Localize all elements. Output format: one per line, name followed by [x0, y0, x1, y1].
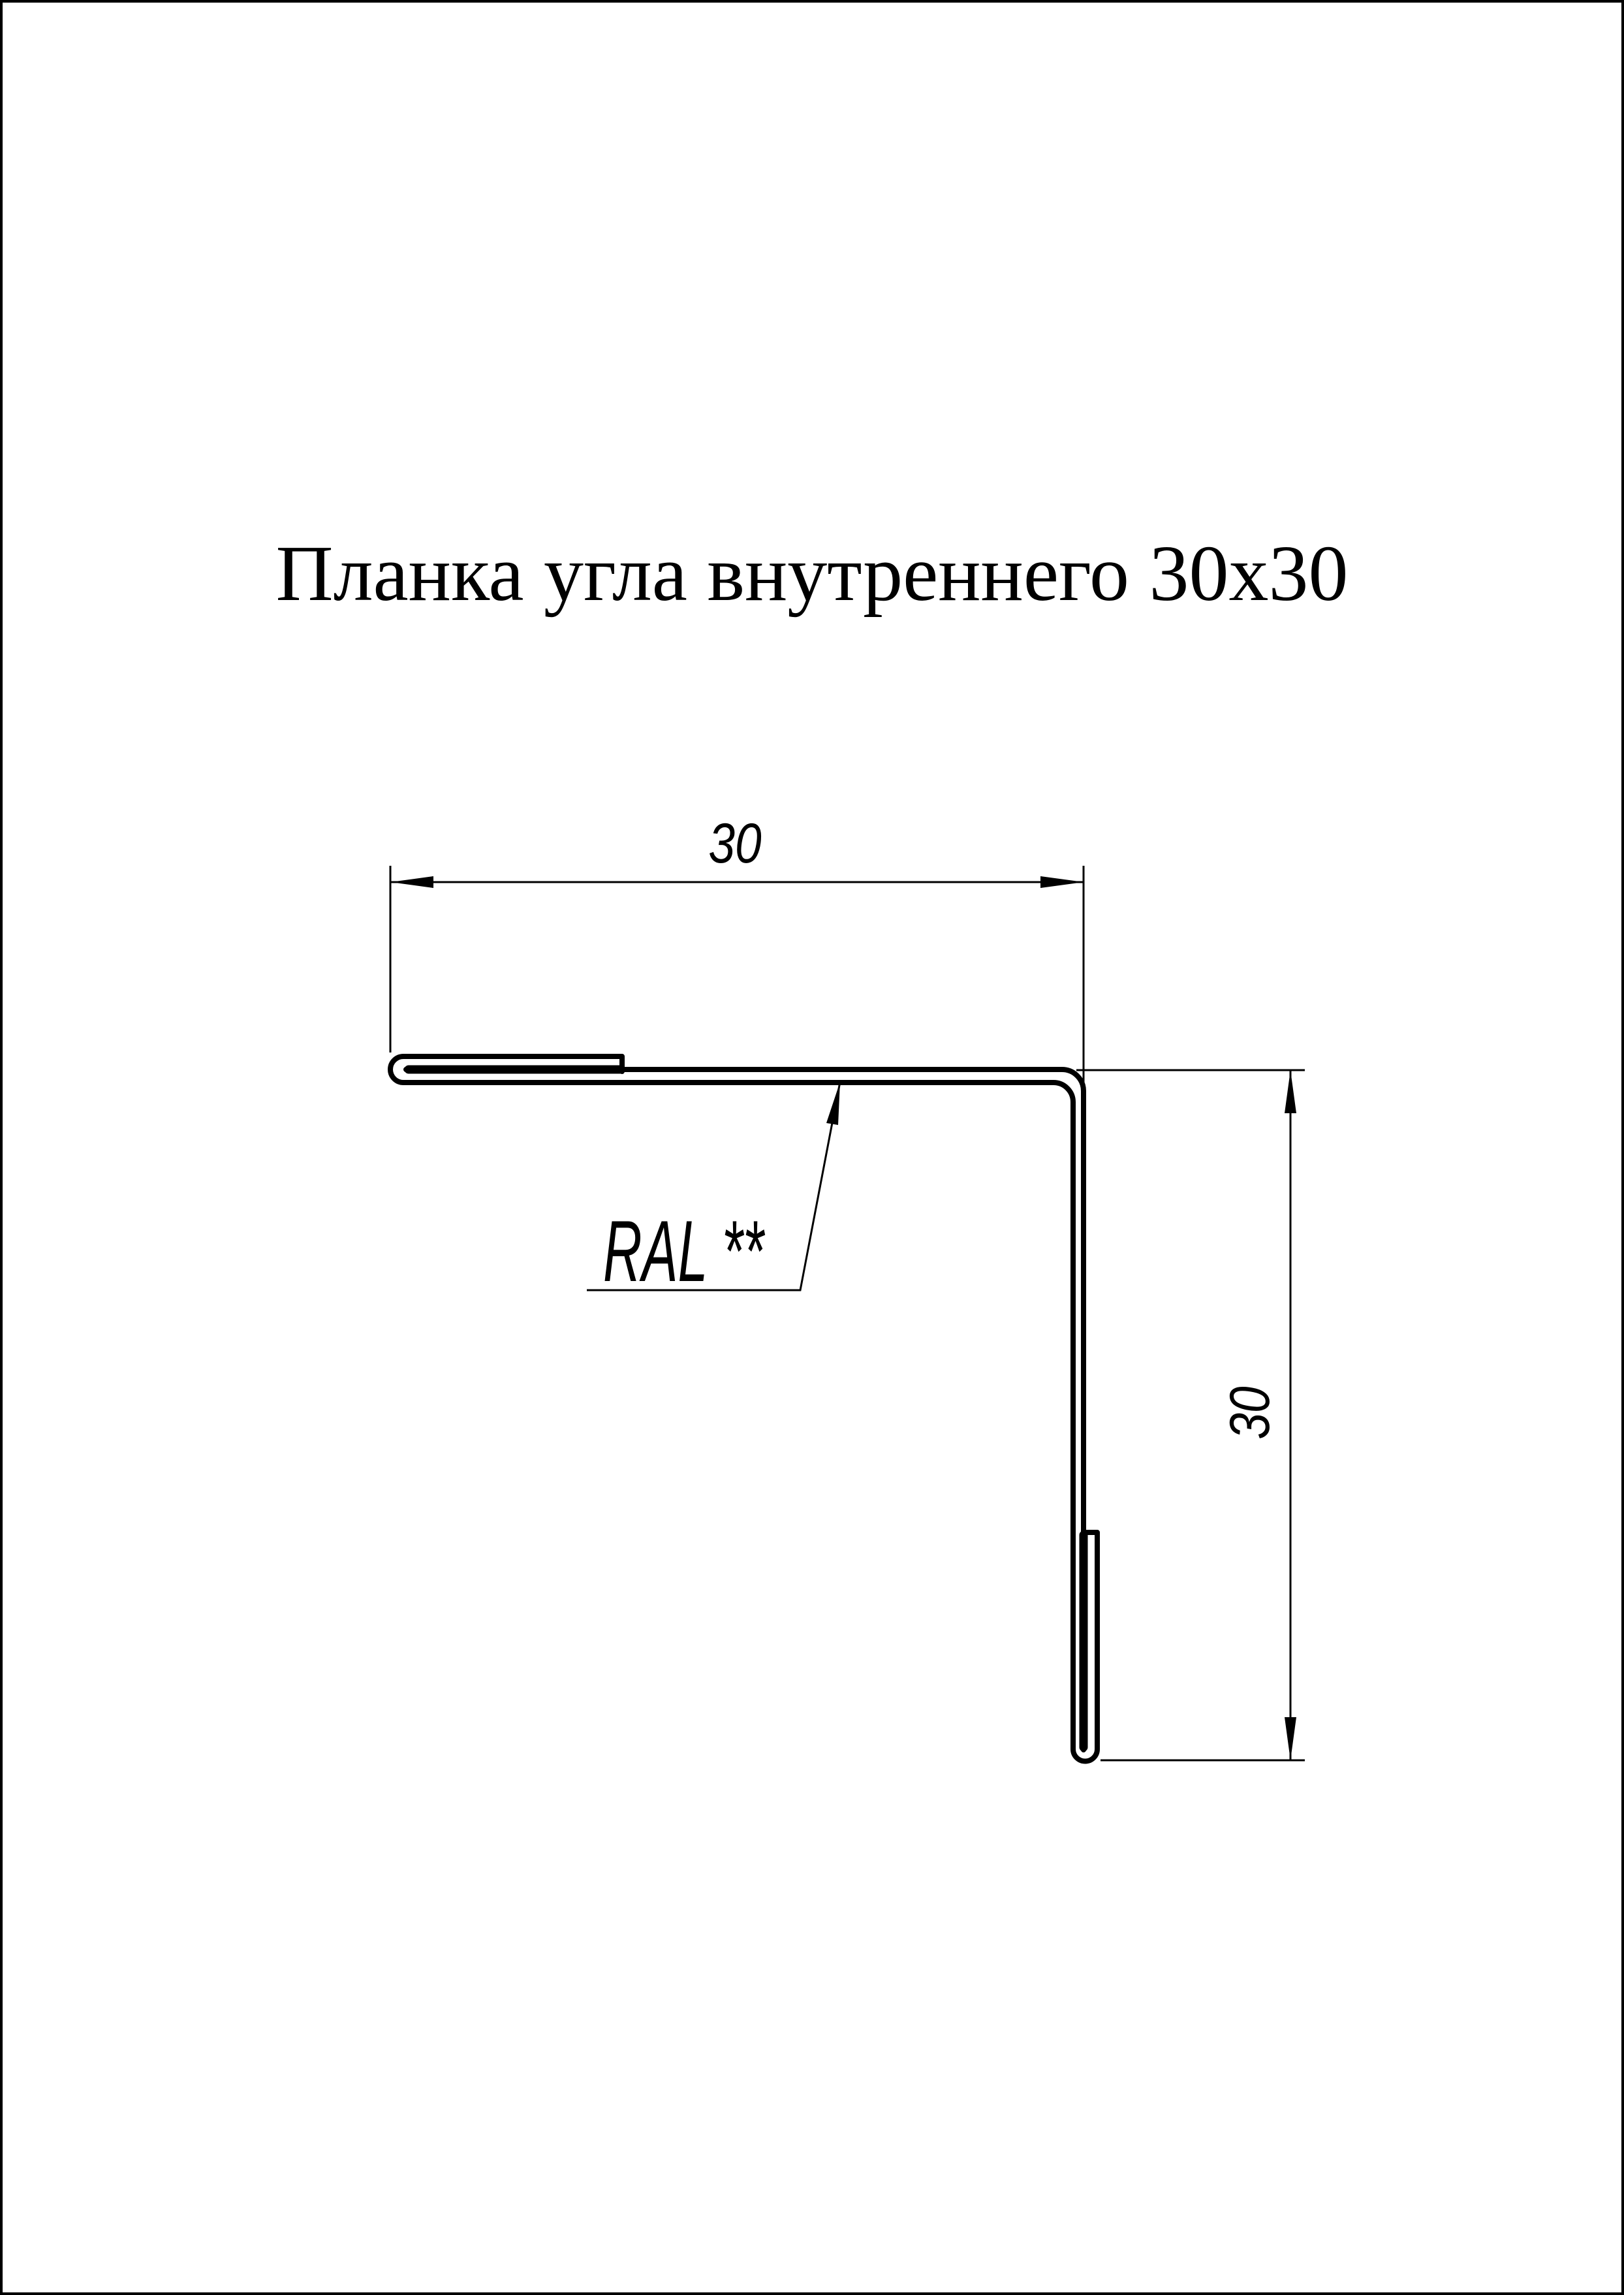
top-dim-arrow-left	[390, 876, 433, 888]
top-dim-label: 30	[708, 812, 761, 874]
top-dim-arrow-right	[1040, 876, 1084, 888]
top-dimension	[390, 866, 1084, 1086]
ral-label: RAL **	[603, 1203, 766, 1300]
ral-leader-arrow	[826, 1082, 840, 1125]
profile-outer-contour	[390, 1056, 1097, 1762]
side-dim-label: 30	[1218, 1386, 1281, 1439]
side-dim-arrow-top	[1285, 1070, 1296, 1113]
profile-inner-contour	[406, 1069, 1084, 1750]
technical-drawing-canvas: 30 30 RAL **	[3, 3, 1624, 2295]
drawing-sheet: Планка угла внутреннего 30x30 30	[0, 0, 1624, 2295]
profile-outline	[390, 1056, 1097, 1762]
side-dim-arrow-bottom	[1285, 1717, 1296, 1760]
